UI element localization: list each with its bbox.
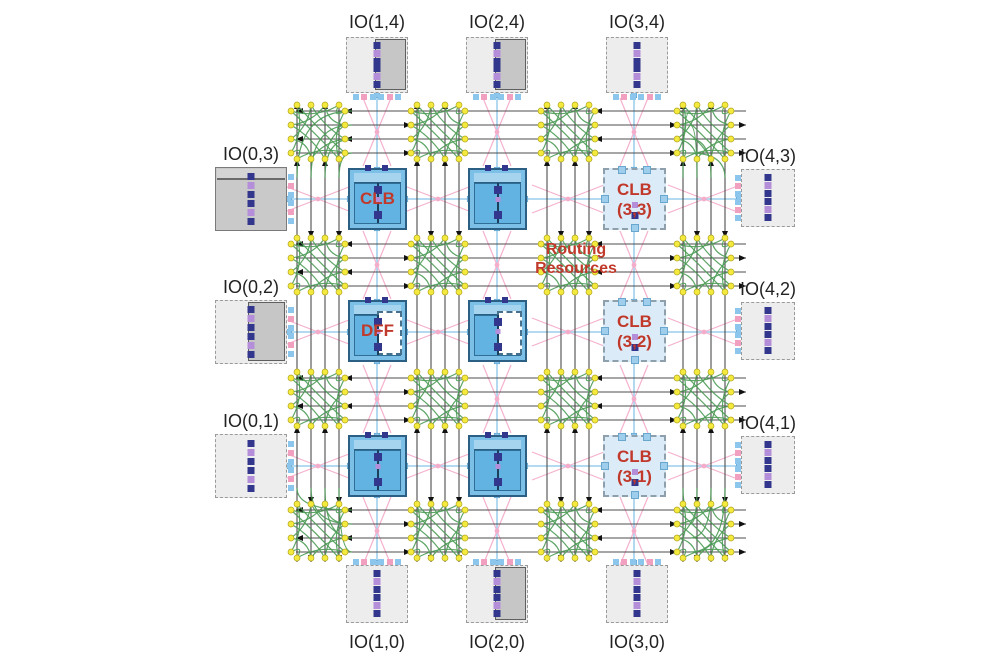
io-dot-column [374,42,381,87]
clb-pin [643,433,651,441]
io-pin-row [472,93,522,100]
clb-block-1-2: DFF [348,300,407,362]
io-label: IO(2,4) [455,12,539,33]
io-pad-dot [634,58,641,65]
clb-top-notch [365,165,371,171]
io-pin [288,192,294,198]
io-pin [735,207,741,213]
io-pin-row [612,558,662,565]
io-pin [288,307,294,313]
io-pad-dot [765,182,772,189]
io-pin [473,559,479,565]
clb-pin [631,224,639,232]
io-pad-dot [494,65,501,72]
io-pad-dot [634,586,641,593]
io-pin [288,316,294,322]
clb-label-name: CLB [605,312,664,332]
clb-pad-dot [374,478,382,486]
io-pad-dot [765,198,772,205]
io-pad-dot [248,209,255,216]
io-dot-column [634,570,641,617]
io-pin-row [287,440,294,492]
io-block----2-4-: IO(2,4) [466,37,528,93]
io-pin-row [287,173,294,225]
io-pad-dot [248,440,255,447]
io-pin [288,459,294,465]
io-pin [395,94,401,100]
io-pad-dot [248,200,255,207]
io-pad-dot [765,323,772,330]
io-pin [361,94,367,100]
io-pin [361,559,367,565]
fpga-architecture-diagram: IO(1,4)IO(2,4)IO(3,4)IO(0,3)IO(0,2)IO(0,… [0,0,1000,666]
io-pin [613,559,619,565]
io-label: IO(4,2) [732,279,805,300]
io-pin [647,559,653,565]
io-pin [507,559,513,565]
io-pad-dot [374,42,381,49]
io-pad-dot [494,42,501,49]
io-block----1-0-: IO(1,0) [346,565,408,623]
clb-block-1-1 [348,435,407,497]
io-pin [735,308,741,314]
io-pad-dot [374,58,381,65]
clb-top-notch [382,432,388,438]
io-pin [507,94,513,100]
io-block----0-1-: IO(0,1) [215,434,287,498]
io-pad-dot [634,570,641,577]
io-pad-dot [494,578,501,585]
io-pad-dot [248,458,255,465]
io-pin [288,200,294,206]
io-pin [498,94,504,100]
dff-label: DFF [350,321,405,341]
io-pin [735,466,741,472]
io-label: IO(2,0) [455,632,539,653]
io-dot-column [494,570,501,617]
io-pad-dot [248,485,255,492]
io-block----0-2-: IO(0,2) [215,300,287,364]
io-pin [735,191,741,197]
io-pad-dot [765,449,772,456]
io-pin [395,559,401,565]
io-pin [288,476,294,482]
io-pad-dot [634,602,641,609]
io-dot-column [765,174,772,221]
clb-top-notch [485,165,491,171]
clb-top-notch [502,432,508,438]
io-pad-dot [765,339,772,346]
io-pad-dot [494,594,501,601]
io-pad-dot [374,81,381,88]
io-pin [515,94,521,100]
io-pin [498,559,504,565]
routing-resources-label: Routing Resources [520,240,632,278]
io-pin [515,559,521,565]
io-label: IO(4,1) [732,413,805,434]
io-pad-dot [374,610,381,617]
io-pin [630,559,636,565]
io-pin [735,332,741,338]
io-pin-row [287,306,294,358]
io-dot-column [248,173,255,225]
io-pin [288,441,294,447]
io-label: IO(0,3) [202,144,300,165]
io-pad-dot [374,594,381,601]
clb-pad-dot [494,318,502,326]
clb-block-3-1: CLB(3,1) [603,435,666,497]
io-pad-dot [634,73,641,80]
io-pin [621,94,627,100]
io-pad-dot [765,315,772,322]
io-pad-dot [494,586,501,593]
io-pad-dot [248,173,255,180]
clb-top-notch [502,297,508,303]
clb-label-coord: (3,1) [605,467,664,487]
io-pad-dot [765,307,772,314]
io-pin [735,474,741,480]
clb-top-notch [382,297,388,303]
io-dot-column [374,570,381,617]
io-pad-dot [248,315,255,322]
io-pin [735,482,741,488]
io-block----3-4-: IO(3,4) [606,37,668,93]
clb-block-2-3 [468,168,527,230]
clb-pad-dot [494,453,502,461]
clb-pin [618,166,626,174]
io-pin [481,559,487,565]
io-pin [490,94,496,100]
io-pin [630,94,636,100]
io-pad-dot [765,347,772,354]
io-pad-dot [634,42,641,49]
io-pad-dot [634,81,641,88]
clb-top-notch [365,432,371,438]
clb-label: CLB(3,1) [605,447,664,486]
io-pin [735,442,741,448]
io-block----3-0-: IO(3,0) [606,565,668,623]
io-pin [735,215,741,221]
io-dot-column [248,306,255,358]
clb-pad-dot [494,343,502,351]
io-pad-dot [634,578,641,585]
io-pad-dot [248,342,255,349]
io-pad-dot [374,602,381,609]
io-pin [735,450,741,456]
io-pad-dot [494,58,501,65]
io-pin-row [734,174,741,221]
io-pin [613,94,619,100]
io-pin [735,458,741,464]
clb-pad-dot [374,453,382,461]
io-pad-dot [494,602,501,609]
clb-pad-dot [494,478,502,486]
io-pin [735,324,741,330]
io-pin [735,183,741,189]
io-label: IO(0,2) [202,277,300,298]
io-pin-row [734,441,741,488]
clb-label: CLB(3,3) [605,180,664,219]
io-pin [370,559,376,565]
clb-top-notch [485,297,491,303]
clb-label: CLB(3,2) [605,312,664,351]
io-pad-dot [494,610,501,617]
io-pad-dot [494,73,501,80]
io-pin [387,559,393,565]
io-pad-dot [248,333,255,340]
clb-top-notch [365,297,371,303]
clb-pin [618,298,626,306]
io-pin [288,450,294,456]
clb-pin [643,298,651,306]
io-pad-dot [248,351,255,358]
io-block----2-0-: IO(2,0) [466,565,528,623]
io-pad-dot [765,473,772,480]
io-pad-dot [765,214,772,221]
io-pad-dot [634,65,641,72]
clb-pin [631,356,639,364]
io-pad-dot [248,306,255,313]
io-pin [288,209,294,215]
io-pin [378,559,384,565]
io-dot-column [494,42,501,87]
io-pin-row [352,93,402,100]
io-pad-dot [765,190,772,197]
io-pad-dot [374,65,381,72]
io-pad-dot [634,50,641,57]
io-pad-dot [494,570,501,577]
clb-pad-dot [374,343,382,351]
clb-pin [618,433,626,441]
io-dot-column [634,42,641,87]
io-pin [353,94,359,100]
clb-pad-dot [495,329,500,334]
clb-top-notch [382,165,388,171]
io-pin [735,175,741,181]
clb-label-name: CLB [605,447,664,467]
io-pin [288,325,294,331]
clb-block-2-2 [468,300,527,362]
clb-block-1-3: CLB [348,168,407,230]
clb-top-notch [485,432,491,438]
io-pin [378,94,384,100]
io-block----0-3-: IO(0,3) [215,167,287,231]
clb-pad-dot [495,197,500,202]
io-pad-dot [765,457,772,464]
io-pin [288,351,294,357]
io-pad-dot [374,578,381,585]
io-pin [387,94,393,100]
io-pad-dot [248,218,255,225]
io-pad-dot [634,594,641,601]
routing-resources-line1: Routing [520,240,632,259]
io-block----4-2-: IO(4,2) [741,302,795,360]
io-pad-dot [248,476,255,483]
io-label: IO(3,4) [595,12,679,33]
io-pin [655,559,661,565]
clb-top-notch [502,165,508,171]
clb-pad-dot [374,211,382,219]
clb-pin [643,166,651,174]
io-pin [288,183,294,189]
io-pad-dot [248,182,255,189]
io-pad-dot [374,50,381,57]
io-pad-dot [374,586,381,593]
clb-label-name: CLB [605,180,664,200]
io-pin [638,559,644,565]
io-pad-dot [765,174,772,181]
io-pin [638,94,644,100]
io-pad-dot [634,610,641,617]
io-pad-dot [765,465,772,472]
clb-pad-dot [495,464,500,469]
clb-pad-dot [375,464,380,469]
clb-pad-dot [494,211,502,219]
io-label: IO(4,3) [732,146,805,167]
routing-resources-line2: Resources [520,259,632,278]
io-pin [288,342,294,348]
io-pad-dot [248,467,255,474]
io-pad-dot [248,324,255,331]
clb-label: CLB [350,189,405,209]
io-block----1-4-: IO(1,4) [346,37,408,93]
io-pin [288,467,294,473]
io-pin [353,559,359,565]
clb-pin [631,491,639,499]
io-pin [490,559,496,565]
io-dot-column [248,440,255,492]
io-pin-row [734,307,741,354]
io-pin [288,333,294,339]
io-pad-dot [374,570,381,577]
io-label: IO(0,1) [202,411,300,432]
io-pad-dot [765,481,772,488]
io-pad-dot [494,81,501,88]
io-label: IO(3,0) [595,632,679,653]
clb-label-coord: (3,2) [605,332,664,352]
io-pin [370,94,376,100]
io-pin-row [352,558,402,565]
clb-label-coord: (3,3) [605,200,664,220]
io-pad-dot [248,449,255,456]
io-pin [288,485,294,491]
io-pin-row [472,558,522,565]
io-pad-dot [248,191,255,198]
io-pad-dot [374,73,381,80]
io-pin [647,94,653,100]
io-dot-column [765,441,772,488]
io-pin-row [612,93,662,100]
io-label: IO(1,0) [335,632,419,653]
io-block----4-1-: IO(4,1) [741,436,795,494]
io-pin [288,218,294,224]
io-pad-dot [765,331,772,338]
io-pin [655,94,661,100]
io-pin [735,316,741,322]
io-pin [735,348,741,354]
io-pad-dot [494,50,501,57]
io-pin [735,199,741,205]
clb-pad-dot [494,186,502,194]
io-dot-column [765,307,772,354]
clb-block-3-3: CLB(3,3) [603,168,666,230]
io-pin [288,174,294,180]
io-pad-dot [765,441,772,448]
io-block----4-3-: IO(4,3) [741,169,795,227]
io-pin [621,559,627,565]
io-label: IO(1,4) [335,12,419,33]
io-pin [735,340,741,346]
io-pin [481,94,487,100]
clb-block-3-2: CLB(3,2) [603,300,666,362]
clb-block-2-1 [468,435,527,497]
io-pin [473,94,479,100]
io-pad-dot [765,206,772,213]
